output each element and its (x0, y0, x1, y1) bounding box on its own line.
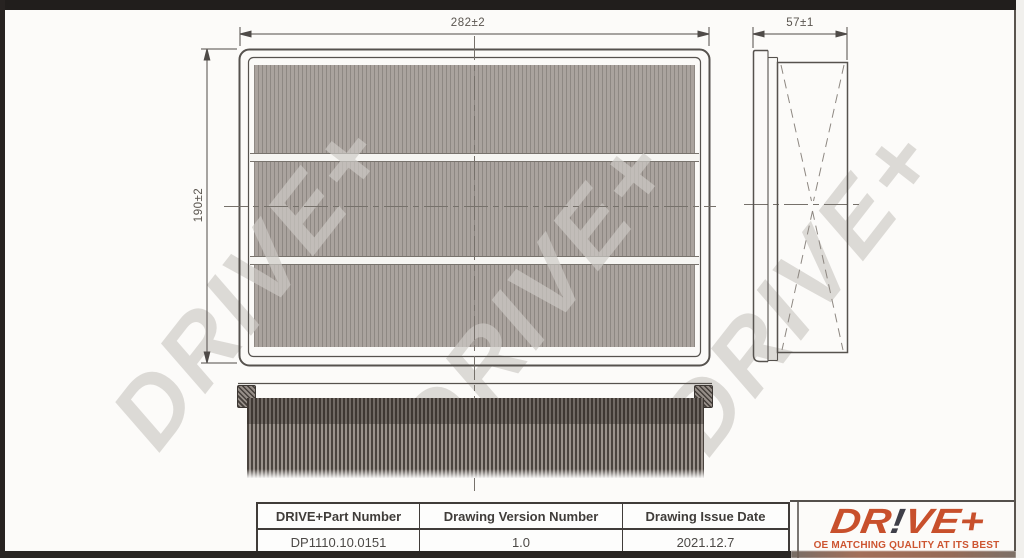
dimension-side-width (753, 27, 847, 60)
title-block-table: DRIVE+Part Number Drawing Version Number… (256, 502, 790, 556)
dimension-label-height: 190±2 (193, 175, 207, 235)
photo-border-left (0, 0, 5, 558)
logo-bottom-strip (791, 551, 1016, 558)
bottom-view-pleat-profile (247, 398, 704, 478)
table-header-version: Drawing Version Number (420, 504, 623, 528)
photo-border-bottom (0, 551, 791, 558)
photo-margin-right (1016, 0, 1024, 558)
drive-plus-logo: DR!VE+ (779, 503, 1024, 540)
logo-tagline: OE MATCHING QUALITY AT ITS BEST (797, 540, 1016, 551)
air-filter-technical-drawing: DRIVE+ DRIVE+ DRIVE+ (0, 0, 1024, 558)
logo-part2: VE+ (901, 502, 987, 542)
table-header-row: DRIVE+Part Number Drawing Version Number… (258, 504, 788, 530)
table-header-part-number: DRIVE+Part Number (258, 504, 420, 528)
table-header-issue-date: Drawing Issue Date (623, 504, 788, 528)
logo-part1: DR (828, 502, 894, 542)
dimension-label-depth: 57±1 (762, 17, 838, 29)
dimension-label-width: 282±2 (408, 17, 528, 29)
side-view-hidden-lines (781, 65, 844, 350)
side-view-outline (754, 51, 848, 362)
photo-border-top (0, 0, 1016, 10)
